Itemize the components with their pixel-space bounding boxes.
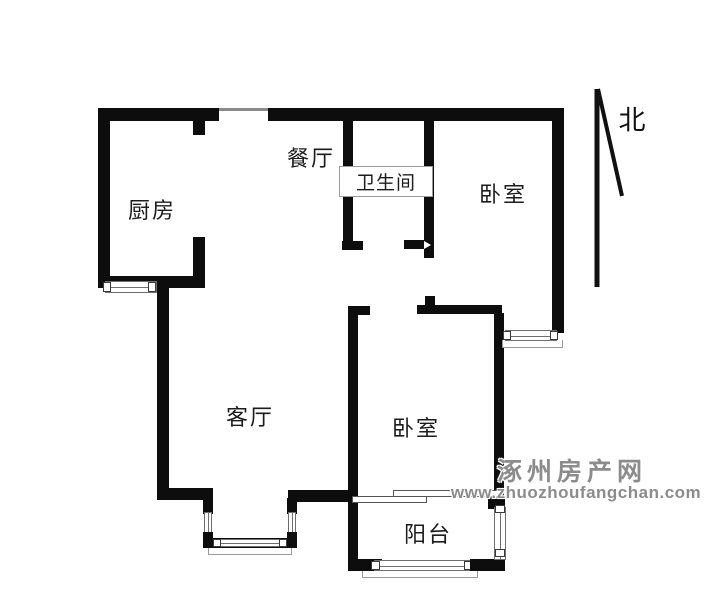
bathroom-door-arrow [424,241,431,249]
bay-right-window [288,512,296,534]
balcony-bottom-window [374,560,472,571]
bedroom-south-label: 卧室 [392,411,440,443]
bay-window-sill [208,548,292,555]
bedroom-north-window-end-left [503,331,511,340]
balcony-window-end-left [371,561,380,570]
opening-top-entry [219,108,268,111]
wall-exterior-right [552,108,564,333]
bedroom-north-label: 卧室 [479,177,527,209]
bay-window-end-right [279,539,287,547]
bedroom-north-window-end-right [550,331,558,340]
wall-living-bottom-right [288,490,352,502]
kitchen-window-end-left [103,282,111,292]
kitchen-label: 厨房 [128,193,176,225]
bedroom-north-window-sill [502,340,563,348]
wall-living-bedroom-divider [348,306,358,498]
bay-left-window [204,512,212,534]
kitchen-window-end-right [148,282,156,292]
wall-kitchen-stub [193,121,205,135]
wall-bedroom-south-top [417,305,502,314]
wall-balcony-bottom-right [470,559,505,571]
wall-living-left [157,288,169,498]
north-label: 北 [619,99,646,138]
floorplan-canvas: 北 厨房 餐厅 卫生间 卧室 客厅 卧室 阳台 涿州房产网 www.zhuozh… [0,0,724,600]
living-room-label: 客厅 [226,400,274,432]
dining-label: 餐厅 [287,141,335,173]
wall-top-left [98,108,219,121]
balcony-right-window-end-top [495,505,505,513]
balcony-sliding-door-leaf-a [352,496,427,503]
bathroom-label: 卫生间 [339,166,433,197]
balcony-window-sill [362,571,478,578]
balcony-right-window-end-bottom [495,549,505,557]
wall-top-right [268,108,564,121]
wall-bathroom-bottom-left [342,241,363,250]
watermark-url: www.zhuozhoufangchan.com [451,483,701,503]
balcony-label: 阳台 [404,517,452,549]
bay-window-end-left [213,539,221,547]
wall-exterior-left [98,108,110,288]
bay-bottom-window [216,539,284,547]
